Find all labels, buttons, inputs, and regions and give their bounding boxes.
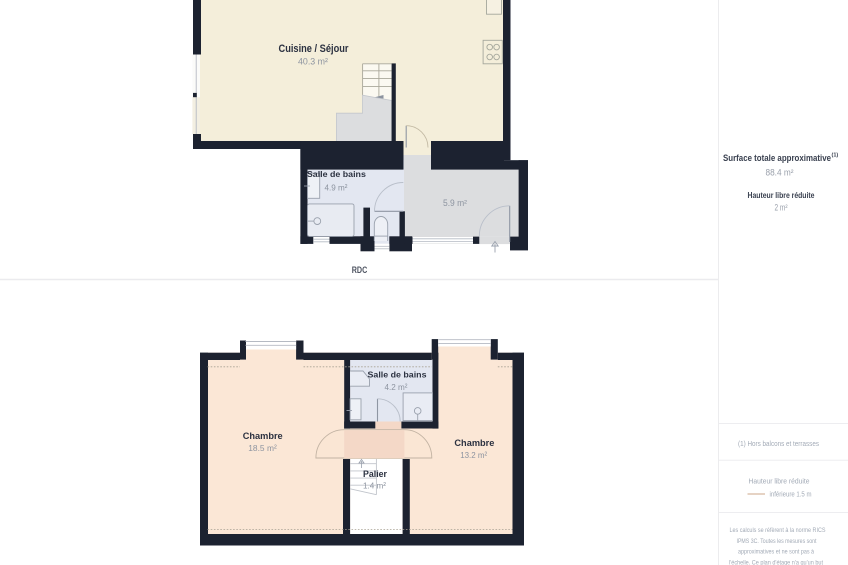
svg-text:13.2 m²: 13.2 m²	[460, 450, 487, 460]
svg-text:RDC: RDC	[352, 265, 368, 275]
svg-text:Hauteur libre réduite: Hauteur libre réduite	[748, 191, 815, 200]
svg-text:Cuisine / Séjour: Cuisine / Séjour	[279, 43, 350, 55]
svg-text:Hauteur libre réduite: Hauteur libre réduite	[749, 479, 810, 486]
svg-text:Salle de bains: Salle de bains	[307, 169, 366, 179]
svg-text:Chambre: Chambre	[454, 438, 494, 449]
svg-text:2 m²: 2 m²	[775, 203, 788, 213]
svg-text:40.3 m²: 40.3 m²	[298, 57, 328, 68]
svg-text:(1): (1)	[832, 153, 839, 159]
svg-text:(1) Hors balcons et terrasses: (1) Hors balcons et terrasses	[738, 441, 819, 448]
svg-text:Surface totale approximative: Surface totale approximative	[723, 153, 831, 163]
svg-text:Chambre: Chambre	[243, 431, 283, 442]
svg-text:88.4 m²: 88.4 m²	[766, 168, 794, 178]
svg-text:18.5 m²: 18.5 m²	[248, 443, 277, 453]
svg-text:inférieure 1.5 m: inférieure 1.5 m	[770, 492, 812, 499]
svg-text:Les calculs se réfèrent à la n: Les calculs se réfèrent à la norme RICS	[730, 527, 827, 534]
svg-text:Salle de bains: Salle de bains	[368, 370, 427, 380]
svg-text:approximatives et ne sont pas: approximatives et ne sont pas à	[738, 549, 814, 556]
svg-text:4.9 m²: 4.9 m²	[325, 183, 348, 193]
svg-text:4.2 m²: 4.2 m²	[385, 382, 408, 392]
svg-text:Palier: Palier	[363, 469, 387, 479]
svg-text:IPMS 3C. Toutes les mesures so: IPMS 3C. Toutes les mesures sont	[737, 538, 817, 545]
svg-text:l'échelle. Ce plan d'étage n'a: l'échelle. Ce plan d'étage n'a qu'un but	[729, 559, 823, 565]
svg-text:1.4 m²: 1.4 m²	[363, 481, 386, 491]
svg-text:5.9 m²: 5.9 m²	[443, 198, 467, 208]
